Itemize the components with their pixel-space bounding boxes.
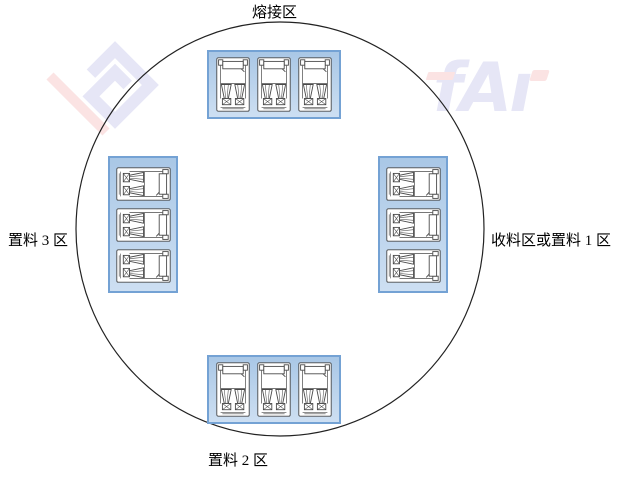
- fixture-group-load-3: [108, 156, 178, 293]
- fixture-module: [116, 249, 171, 283]
- fixture-group-receive-or-load-1: [378, 156, 448, 293]
- fixture-module: [257, 362, 291, 417]
- fixture-module: [257, 57, 291, 112]
- zone-label-receive-or-load-1: 收料区或置料 1 区: [491, 229, 611, 250]
- zone-label-welding: 熔接区: [252, 1, 297, 22]
- zone-label-load-2: 置料 2 区: [208, 449, 268, 470]
- fixture-module: [386, 249, 441, 283]
- fixture-group-load-2: [207, 355, 341, 424]
- fixture-module: [386, 208, 441, 242]
- fixture-module: [386, 167, 441, 201]
- fixture-module: [216, 57, 250, 112]
- zone-label-load-3: 置料 3 区: [8, 229, 68, 250]
- fixture-group-welding: [207, 50, 341, 119]
- fixture-module: [116, 208, 171, 242]
- turntable-layout-diagram: fAı: [0, 0, 621, 480]
- fixture-module: [116, 167, 171, 201]
- fixture-module: [216, 362, 250, 417]
- fixture-module: [298, 362, 332, 417]
- fixture-module: [298, 57, 332, 112]
